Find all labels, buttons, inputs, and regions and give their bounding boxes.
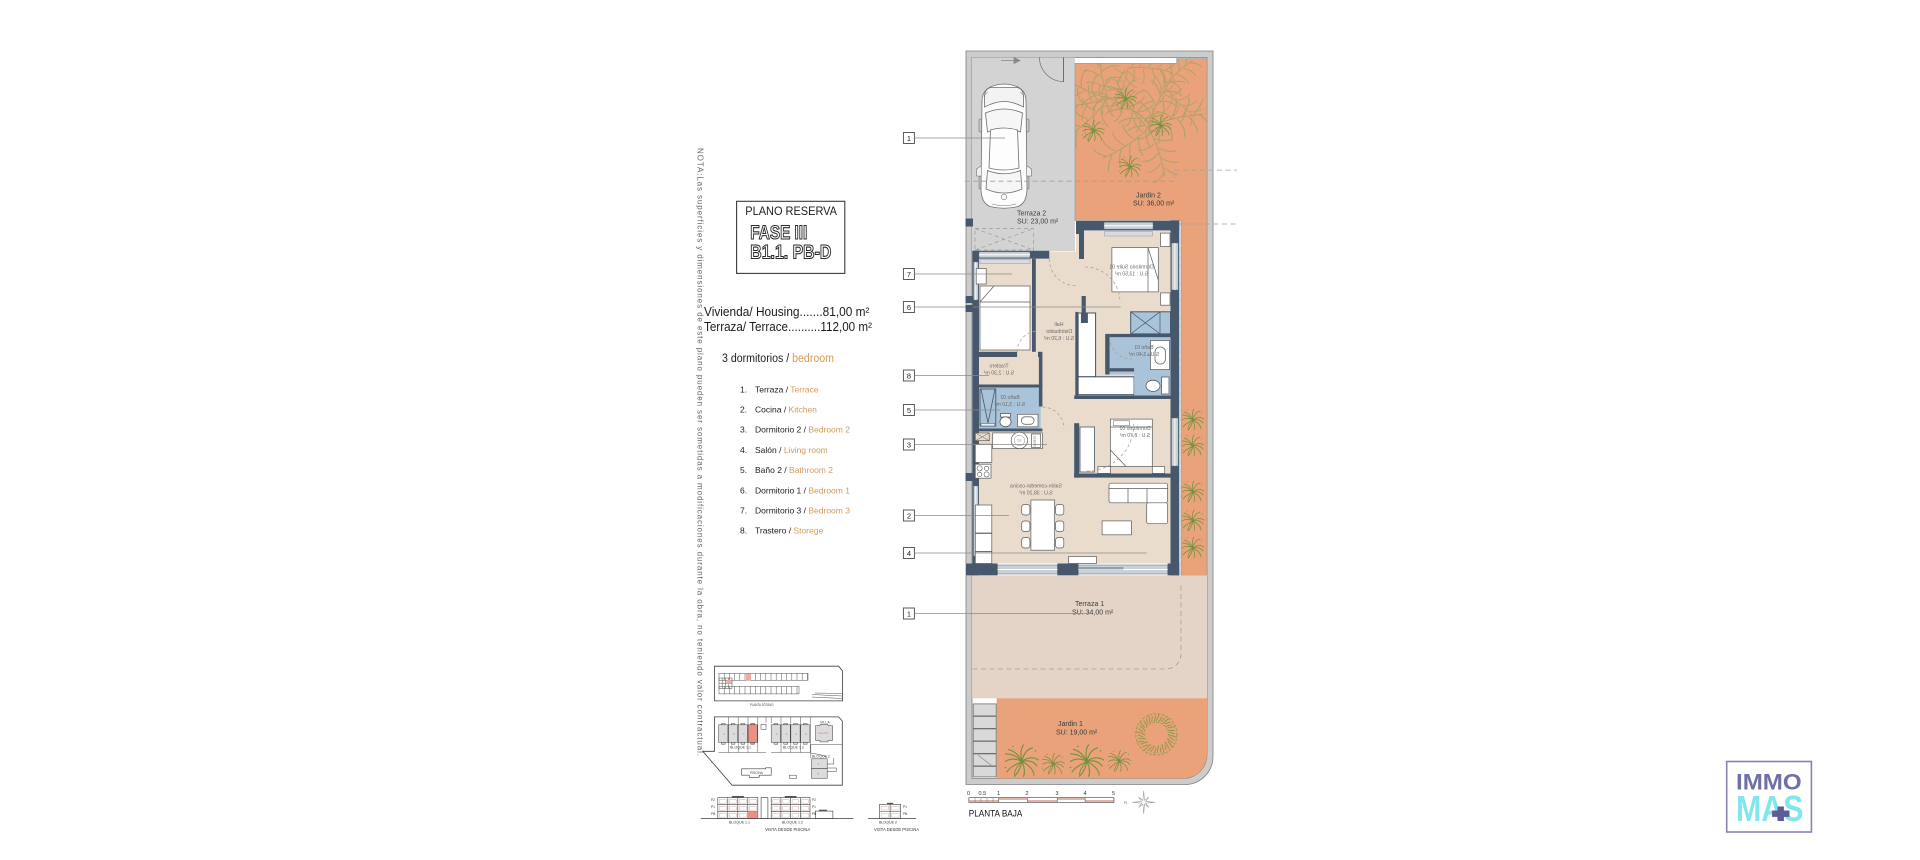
svg-text:S.U : 3,10 m²: S.U : 3,10 m² xyxy=(994,402,1025,408)
svg-text:BLOQUE 2: BLOQUE 2 xyxy=(812,755,830,759)
svg-text:1: 1 xyxy=(907,134,911,143)
svg-text:Salón-comedor-cocina: Salón-comedor-cocina xyxy=(1010,484,1062,490)
svg-text:VISTA DESDE PISCINA: VISTA DESDE PISCINA xyxy=(765,827,810,832)
svg-text:Terraza 1: Terraza 1 xyxy=(1075,601,1104,608)
svg-text:Dormitorio 02: Dormitorio 02 xyxy=(1119,426,1150,432)
svg-text:3 dormitorios / bedroom: 3 dormitorios / bedroom xyxy=(722,353,834,365)
svg-text:B1.1. PB-D: B1.1. PB-D xyxy=(750,242,831,264)
svg-text:0.5: 0.5 xyxy=(979,791,987,797)
svg-text:B: B xyxy=(733,732,735,736)
svg-text:BLOQUE 1.1: BLOQUE 1.1 xyxy=(729,821,750,825)
svg-text:VILLA: VILLA xyxy=(820,721,830,725)
svg-text:P1: P1 xyxy=(812,805,816,809)
svg-text:Dormitorio 2 / Bedroom 2: Dormitorio 2 / Bedroom 2 xyxy=(755,425,850,435)
svg-text:3: 3 xyxy=(907,441,911,450)
svg-text:5: 5 xyxy=(907,406,911,415)
svg-text:S2: S2 xyxy=(1017,439,1021,443)
svg-text:Trastero: Trastero xyxy=(989,364,1008,370)
svg-text:0: 0 xyxy=(967,791,970,797)
svg-text:NOTA:Las superficies y dimensi: NOTA:Las superficies y dimensiones de es… xyxy=(696,148,705,756)
svg-text:Baño 01: Baño 01 xyxy=(1134,345,1153,351)
svg-text:S.U : 6,20 m²: S.U : 6,20 m² xyxy=(1043,336,1074,342)
svg-text:8.: 8. xyxy=(740,526,747,536)
svg-text:4: 4 xyxy=(907,549,911,558)
svg-text:PLANTA SÓTANO: PLANTA SÓTANO xyxy=(750,702,774,707)
svg-text:VILLA 01: VILLA 01 xyxy=(818,731,829,735)
svg-text:N: N xyxy=(1124,800,1127,805)
svg-text:S.U : 8,70 m²: S.U : 8,70 m² xyxy=(1119,433,1150,439)
svg-text:P2: P2 xyxy=(812,798,816,802)
svg-text:P1: P1 xyxy=(903,805,907,809)
svg-text:6: 6 xyxy=(907,303,911,312)
svg-text:1: 1 xyxy=(997,791,1000,797)
svg-text:S.U : 38,20 m²: S.U : 38,20 m² xyxy=(1019,491,1053,497)
svg-text:SU: 34,00 m²: SU: 34,00 m² xyxy=(1072,610,1114,617)
svg-text:D: D xyxy=(776,732,778,736)
svg-text:MAS: MAS xyxy=(1736,788,1804,829)
svg-text:3.: 3. xyxy=(740,425,747,435)
svg-text:B: B xyxy=(818,772,820,776)
svg-text:Baño 02: Baño 02 xyxy=(1000,395,1019,401)
svg-text:1.: 1. xyxy=(740,384,747,394)
svg-text:2: 2 xyxy=(907,512,911,521)
svg-text:Cocina / Kitchen: Cocina / Kitchen xyxy=(755,405,817,415)
svg-text:Salón / Living room: Salón / Living room xyxy=(755,445,828,455)
svg-text:8: 8 xyxy=(907,372,911,381)
svg-text:6.: 6. xyxy=(740,485,747,495)
svg-text:PISCINA: PISCINA xyxy=(750,771,764,775)
svg-text:PB: PB xyxy=(812,812,816,816)
svg-text:P2: P2 xyxy=(711,798,715,802)
svg-text:Distribuidor: Distribuidor xyxy=(1046,329,1073,335)
svg-text:BLOQUE 2: BLOQUE 2 xyxy=(879,821,897,825)
svg-text:SU: 36,00 m²: SU: 36,00 m² xyxy=(1133,201,1175,208)
svg-text:SU: 23,00 m²: SU: 23,00 m² xyxy=(1017,219,1059,226)
svg-text:5.: 5. xyxy=(740,465,747,475)
svg-text:VISTA DESDE PISCINA: VISTA DESDE PISCINA xyxy=(874,827,919,832)
svg-text:SU: 19,00 m²: SU: 19,00 m² xyxy=(1056,730,1098,737)
svg-text:Terraza/ Terrace..........112,: Terraza/ Terrace..........112,00 m² xyxy=(704,319,873,334)
svg-text:PB: PB xyxy=(903,812,907,816)
svg-text:4.: 4. xyxy=(740,445,747,455)
svg-text:C: C xyxy=(743,732,745,736)
svg-text:Baño 2 / Bathroom 2: Baño 2 / Bathroom 2 xyxy=(755,465,833,475)
svg-text:PLANO RESERVA: PLANO RESERVA xyxy=(745,204,837,218)
svg-text:PB: PB xyxy=(711,812,715,816)
svg-text:Dormitorio 1 / Bedroom 1: Dormitorio 1 / Bedroom 1 xyxy=(755,485,850,495)
svg-text:1: 1 xyxy=(907,610,911,619)
svg-text:S.U : 3,40 m²: S.U : 3,40 m² xyxy=(1128,352,1159,358)
svg-text:A: A xyxy=(818,762,820,766)
svg-text:S.U : 13,50 m²: S.U : 13,50 m² xyxy=(1115,272,1149,278)
svg-text:Dormitorio 3 / Bedroom 3: Dormitorio 3 / Bedroom 3 xyxy=(755,506,850,516)
svg-text:D: D xyxy=(795,732,797,736)
svg-text:Vivienda/ Housing.......81,00: Vivienda/ Housing.......81,00 m² xyxy=(704,304,870,319)
svg-text:P1: P1 xyxy=(711,805,715,809)
svg-text:Dormitorio Suite 01: Dormitorio Suite 01 xyxy=(1109,265,1154,271)
svg-text:BLOQUE 1.2: BLOQUE 1.2 xyxy=(783,746,804,750)
svg-text:D: D xyxy=(805,732,807,736)
svg-text:Hall: Hall xyxy=(1055,322,1064,328)
svg-text:Jardin 2: Jardin 2 xyxy=(1136,193,1161,200)
svg-text:5: 5 xyxy=(1112,791,1115,797)
svg-text:Jardin 1: Jardin 1 xyxy=(1058,721,1083,728)
svg-text:4: 4 xyxy=(1084,791,1087,797)
svg-text:PLANTA BAJA: PLANTA BAJA xyxy=(969,809,1023,820)
svg-text:3: 3 xyxy=(1056,791,1059,797)
svg-text:D: D xyxy=(786,732,788,736)
svg-text:Trastero / Storege: Trastero / Storege xyxy=(755,526,823,536)
svg-text:A: A xyxy=(723,732,725,736)
svg-text:2.: 2. xyxy=(740,405,747,415)
svg-text:BLOQUE 1.1: BLOQUE 1.1 xyxy=(730,746,751,750)
svg-text:Terraza 2: Terraza 2 xyxy=(1017,211,1046,218)
svg-text:2: 2 xyxy=(1026,791,1029,797)
svg-text:7.: 7. xyxy=(740,506,747,516)
svg-text:FASE III: FASE III xyxy=(750,222,807,244)
svg-text:7: 7 xyxy=(907,270,911,279)
svg-text:TERMO: TERMO xyxy=(1033,435,1037,448)
svg-text:BLOQUE 1.2: BLOQUE 1.2 xyxy=(782,821,803,825)
svg-text:Terraza / Terrace: Terraza / Terrace xyxy=(755,384,819,394)
